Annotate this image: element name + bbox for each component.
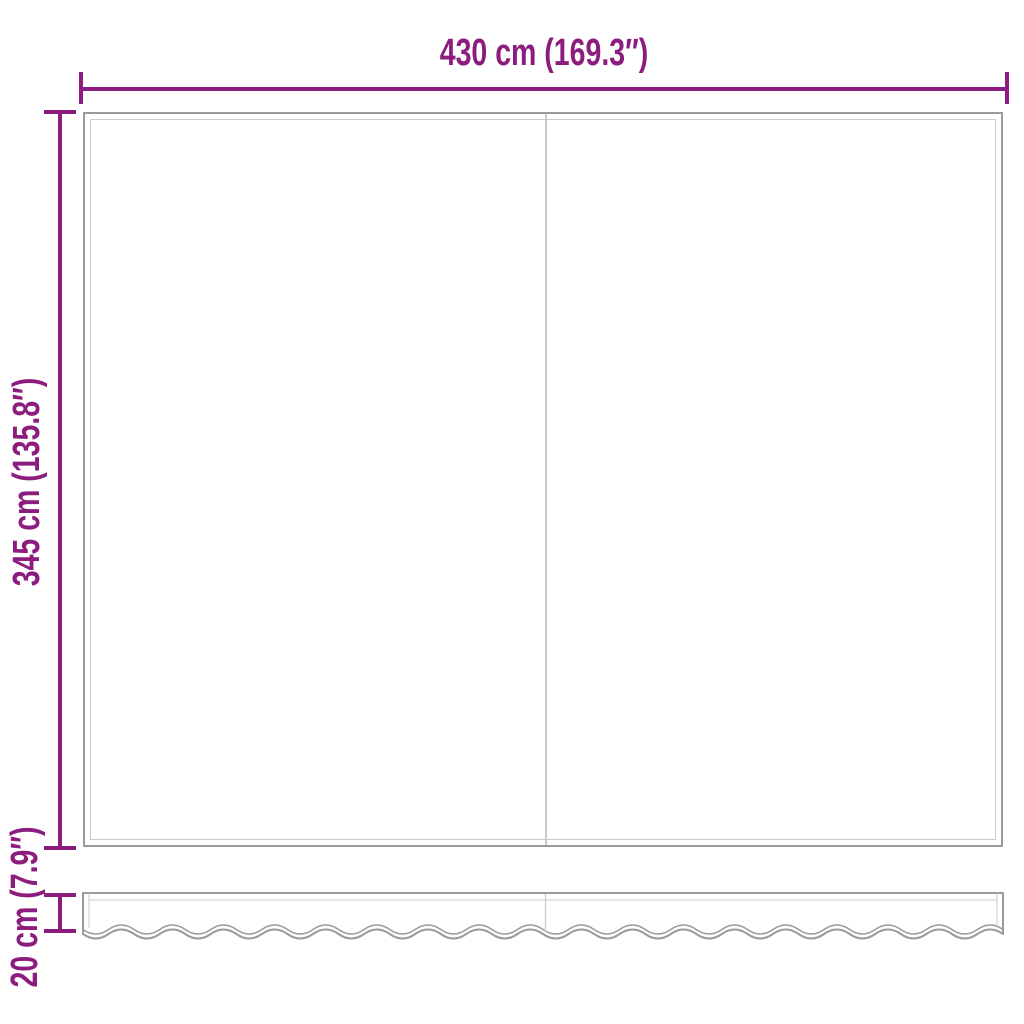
width-dimension-left-tick [79,72,83,104]
fabric-center-seam [545,114,547,845]
width-dimension-label: 430 cm (169.3″) [282,33,807,73]
awning-fabric-panel [83,112,1003,847]
fabric-hem-line [90,119,996,840]
height-dimension-label: 345 cm (135.8″) [7,332,47,632]
valance-strip [0,880,1024,980]
height-dimension-line [58,112,62,848]
width-dimension-right-tick [1005,72,1009,104]
height-dimension-bottom-tick [44,846,76,850]
height-dimension-top-tick [44,110,76,114]
dimension-diagram: 430 cm (169.3″) 345 cm (135.8″) 20 cm (7… [0,0,1024,1024]
width-dimension-line [81,87,1007,91]
